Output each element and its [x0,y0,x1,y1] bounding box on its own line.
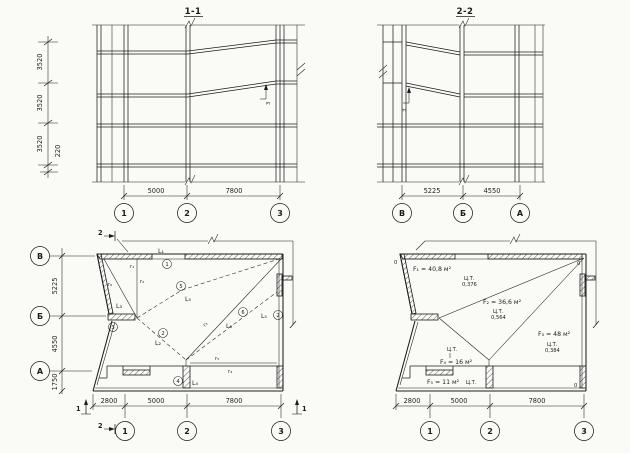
panel-length-label: L₅ [261,313,267,320]
callout-label: 3 [402,109,408,112]
panel-length-label: L₁ [158,248,164,255]
hdim: 2800 [404,397,421,405]
hdim: 2800 [101,397,118,405]
panel-number: 5 [179,284,182,290]
plan-left-building [93,254,292,391]
vdim: 4550 [51,336,59,353]
section-1-1-structure [92,18,305,185]
section-1-1-callout: 3 [260,84,272,105]
area-label-f4: F₄ = 16 м² [440,359,473,366]
hdim: 7800 [529,397,546,405]
area-label-f5: F₅ = 11 м² [427,379,460,386]
hdim: 5000 [148,187,165,195]
section-2-2-structure [377,18,545,185]
plan-left-rigging [104,258,282,363]
section-mark-2-top: 2 [98,229,103,237]
plan-left-row-axes: В Б А 5225 4550 1750 [31,247,107,395]
plan-left-bottom-dims: 2800 5000 7800 1 2 3 [90,394,291,441]
panel-number: 6 [241,310,244,316]
vdim: 1750 [51,374,59,391]
axis-bubble: 1 [427,427,433,436]
vdim: 3520 [36,54,44,71]
vdim: 5225 [51,278,59,295]
centroid-label: Ц.Т. [466,380,477,386]
radius-label: r₂ [140,279,144,285]
vdim: 3520 [36,95,44,112]
axis-bubble: Б [460,209,466,218]
section-mark-2-bottom: 2 [98,422,103,430]
panel-number: 1 [165,262,168,268]
section-1-1-title: 1-1 [185,7,202,17]
axis-bubble: 2 [487,427,493,436]
axis-bubble: 1 [122,427,128,436]
hdim: 5000 [451,397,468,405]
axis-bubble: 2 [184,209,190,218]
panel-number: 2 [276,313,279,319]
section-mark-1-right: 1 [302,405,307,413]
panel-length-label: L₂ [155,340,161,347]
radius-label: r₁ [130,264,134,270]
hdim: 5225 [424,187,441,195]
axis-bubble: А [37,367,44,376]
section-mark-1-left: 1 [76,405,81,413]
hdim: 5000 [148,397,165,405]
panel-length-label: L₃ [116,303,122,310]
area-label-f1: F₁ = 40,8 м² [413,266,452,273]
anchor-label: 0 [577,261,580,267]
axis-bubble: А [517,209,524,218]
section-1-1: 1-1 [36,7,305,223]
panel-number: 4 [176,379,180,385]
axis-bubble: 3 [581,427,587,436]
anchor-label: 0 [394,260,397,266]
panel-length-label: L₅ [185,296,191,303]
section-1-1-bottom-dims: 5000 7800 1 2 3 [115,185,290,223]
section-2-2: 2-2 [377,7,545,223]
area-label-f2: F₂ = 36,6 м² [483,299,522,306]
radius-label: r₆ [108,282,112,288]
vdim: 3520 [36,136,44,153]
area-label-f3: F₃ = 48 м² [538,331,571,338]
section-1-1-vertical-dims: 3520 3520 3520 220 [36,36,62,178]
radius-label: r₄ [228,369,232,375]
plan-panel-areas: 0 0 0 F₁ = 40,8 м² Ц.Т. 0,376 F₂ = 36,6 … [393,234,599,441]
radius-label: r₅ [215,356,219,362]
vdim-small: 220 [54,145,62,158]
callout-label: 3 [266,102,272,105]
section-2-2-title: 2-2 [457,7,474,17]
plan-right-building [396,254,595,391]
plan-right-sling-lines [439,258,584,366]
centroid-value: 0,376 [462,282,477,288]
axis-bubble: Б [37,312,43,321]
panel-number: 3 [111,325,114,331]
axis-bubble: 2 [184,427,190,436]
axis-bubble: В [399,209,405,218]
centroid-value: 0,384 [545,348,561,354]
axis-bubble: 3 [278,427,284,436]
axis-bubble: В [37,252,43,261]
section-2-2-callout: 3 [402,87,411,112]
plan-right-bottom-dims: 2800 5000 7800 1 2 3 [393,394,594,441]
centroid-label: Ц.Т. [447,347,458,353]
plan-panel-layout: В Б А 5225 4550 1750 [31,229,308,441]
panel-number: 2 [161,331,164,337]
panel-length-label: L₆ [226,323,232,330]
drawing-sheet: 1-1 [0,0,630,453]
plan-right-extension-lines [416,234,599,328]
axis-bubble: 1 [121,209,127,218]
hdim: 7800 [226,397,243,405]
radius-label: r₃ [202,321,209,328]
section-2-2-bottom-dims: 5225 4550 В Б А [393,185,530,223]
axis-bubble: 3 [277,209,283,218]
panel-length-label: L₄ [192,380,198,387]
centroid-value: 0,564 [491,315,507,321]
hdim: 7800 [226,187,243,195]
hdim: 4550 [484,187,501,195]
anchor-label: 0 [574,383,577,389]
construction-drawing: 1-1 [0,0,630,453]
